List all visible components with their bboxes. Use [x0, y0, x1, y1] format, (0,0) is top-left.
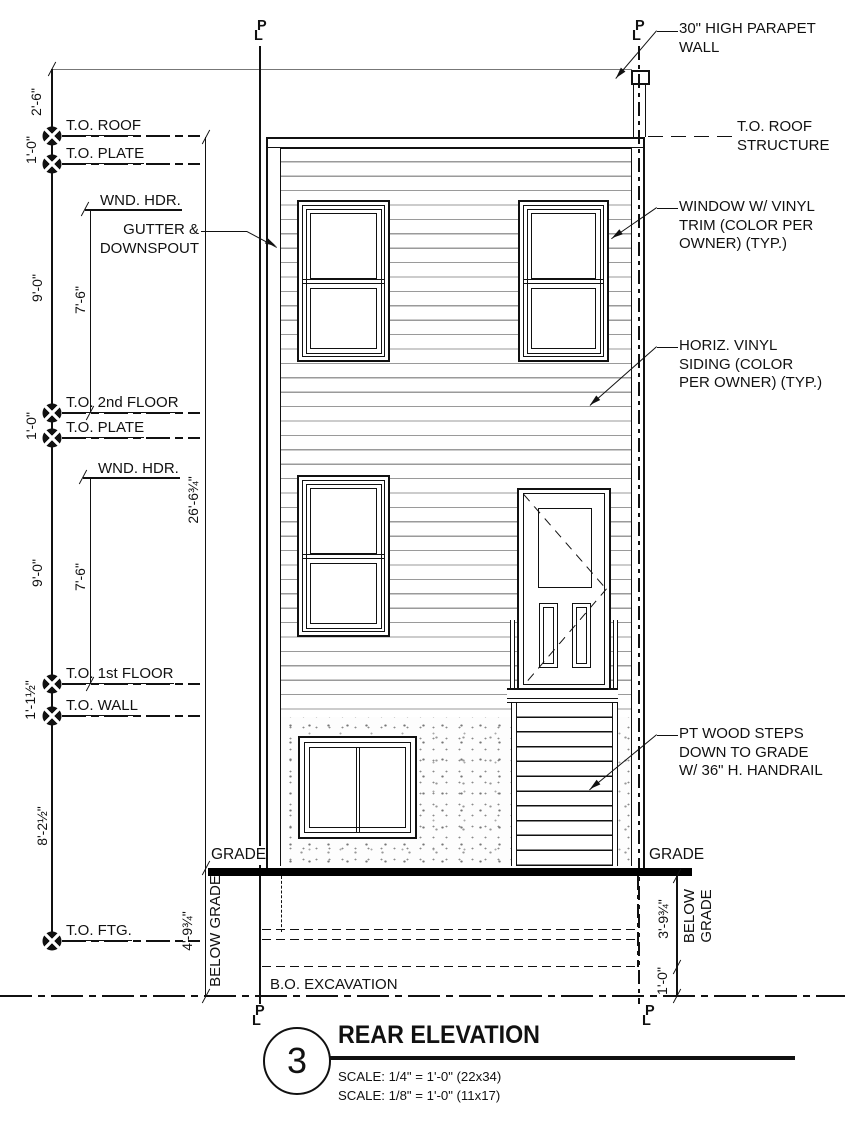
datum-marker [43, 675, 62, 694]
steps-note: PT WOOD STEPS DOWN TO GRADE W/ 36" H. HA… [679, 725, 823, 781]
parapet-cap [631, 70, 650, 85]
gutter-leader-h [201, 231, 247, 232]
title-rule [330, 1056, 795, 1060]
pl-l: L [252, 1015, 261, 1028]
pl-l: L [632, 30, 641, 43]
below-grade-left-label: BELOW GRADE [208, 875, 224, 987]
footing-line-2 [262, 939, 638, 940]
upper-pane [310, 213, 377, 279]
wnd-hdr-lower-dim-line [90, 477, 91, 684]
dim-grade-to-ftg-right: 3'-9¾" [655, 899, 671, 939]
steps-leader-h [657, 735, 678, 736]
dim-wall-to-ftg: 8'-2½" [34, 806, 50, 846]
scale-note-1: SCALE: 1/4" = 1'-0" (22x34) [338, 1068, 501, 1087]
lower-pane [310, 563, 377, 624]
scale-note-2: SCALE: 1/8" = 1'-0" (11x17) [338, 1087, 500, 1106]
property-line-marker-top-left: P L [253, 20, 269, 46]
door-right-lite [572, 603, 591, 668]
datum-label-to-plate-upper: T.O. PLATE [66, 146, 144, 164]
upper-right-window [518, 200, 609, 362]
wnd-hdr-lower-line [83, 477, 180, 479]
window-note: WINDOW W/ VINYL TRIM (COLOR PER OWNER) (… [679, 198, 815, 254]
datum-marker [43, 932, 62, 951]
siding-note: HORIZ. VINYL SIDING (COLOR PER OWNER) (T… [679, 337, 822, 393]
drawing-title: REAR ELEVATION [338, 1026, 540, 1045]
datum-marker [43, 127, 62, 146]
dim-parapet-height: 2'-6" [28, 88, 44, 116]
datum-marker [43, 155, 62, 174]
parapet-leader-arrow [614, 68, 626, 80]
datum-label-to-ftg: T.O. FTG. [66, 923, 132, 941]
lower-pane [531, 288, 596, 349]
right-corner-board [631, 148, 643, 866]
property-line-marker-bottom-right: P L [641, 1005, 657, 1031]
siding-leader-h [657, 347, 678, 348]
door-landing [507, 688, 618, 703]
property-line-marker-bottom-left: P L [251, 1005, 267, 1031]
meeting-rail [302, 279, 385, 284]
left-corner-board-downspout [268, 148, 281, 866]
handrail-post-right [613, 620, 618, 688]
pl-l: L [642, 1015, 651, 1028]
right-below-grade-dim-line [676, 876, 677, 996]
wnd-hdr-upper-line [85, 209, 182, 211]
footing-line-1 [262, 929, 638, 930]
bottom-of-excavation-line [0, 995, 845, 997]
stair-stringer-right [612, 703, 618, 866]
datum-label-to-plate-lower: T.O. PLATE [66, 420, 144, 438]
drawing-number-bubble: 3 [263, 1027, 331, 1095]
elevation-drawing-sheet: T.O. ROOF T.O. PLATE T.O. 2nd FLOOR T.O.… [0, 0, 851, 1126]
grade-right-label: GRADE [649, 846, 704, 865]
property-line-marker-top-right: P L [631, 20, 647, 46]
window-leader-h [657, 208, 678, 209]
wnd-hdr-upper-label: WND. HDR. [100, 192, 181, 211]
upper-pane [531, 213, 596, 279]
dim-floor1-to-wall: 1'-1½" [22, 680, 38, 720]
fascia-band-line [266, 147, 645, 149]
parapet-top-extension-line [52, 69, 632, 70]
datum-label-to-2nd-floor: T.O. 2nd FLOOR [66, 395, 179, 413]
upper-pane [310, 488, 377, 554]
to-roof-structure-line [648, 136, 734, 138]
dim-overall-height: 26'-6¾" [185, 476, 201, 523]
second-floor-window [297, 475, 390, 637]
datum-marker [43, 707, 62, 726]
basement-window [298, 736, 417, 839]
meeting-rail [523, 279, 604, 284]
footing-line-3 [262, 966, 638, 967]
grade-left-label: GRADE [211, 846, 266, 865]
datum-label-to-roof: T.O. ROOF [66, 118, 141, 136]
main-dimension-line [51, 69, 53, 941]
parapet-leader-h [657, 31, 678, 32]
dim-roof-to-plate: 1'-0" [23, 136, 39, 164]
below-grade-wall-left [281, 876, 282, 932]
handrail-post-left [510, 620, 515, 688]
below-grade-wall-right [637, 876, 639, 967]
parapet-note: 30" HIGH PARAPET WALL [679, 20, 816, 57]
pl-l: L [254, 30, 263, 43]
drawing-number: 3 [287, 1040, 307, 1082]
basement-window-mullion [356, 747, 360, 832]
rear-door [517, 488, 611, 691]
below-grade-right-label: BELOW GRADE [681, 889, 715, 943]
dim-upper-floor-height: 9'-0" [29, 274, 45, 302]
door-landing-line [507, 698, 618, 699]
door-left-lite [539, 603, 558, 668]
upper-left-window [297, 200, 390, 362]
dim-lower-floor-height: 9'-0" [29, 559, 45, 587]
datum-marker [43, 429, 62, 448]
wnd-hdr-lower-label: WND. HDR. [98, 460, 179, 479]
dim-floor2-to-plate: 1'-0" [23, 412, 39, 440]
grade-line-bar [208, 868, 692, 876]
lower-pane [310, 288, 377, 349]
datum-label-to-wall: T.O. WALL [66, 698, 138, 716]
to-roof-structure-label: T.O. ROOF STRUCTURE [737, 117, 830, 155]
meeting-rail [302, 554, 385, 559]
dim-lower-wnd-hdr: 7'-6" [72, 563, 88, 591]
property-line-right [638, 46, 640, 1004]
datum-marker [43, 404, 62, 423]
gutter-note: GUTTER & DOWNSPOUT [99, 221, 199, 258]
dim-ftg-to-excav-right: 1'-0" [654, 967, 670, 995]
bo-excavation-label: B.O. EXCAVATION [270, 976, 398, 995]
dim-grade-to-excav-left: 4'-9¾" [179, 911, 195, 951]
datum-label-to-1st-floor: T.O. 1st FLOOR [66, 666, 174, 684]
dim-upper-wnd-hdr: 7'-6" [72, 286, 88, 314]
wnd-hdr-upper-dim-line [90, 209, 91, 413]
